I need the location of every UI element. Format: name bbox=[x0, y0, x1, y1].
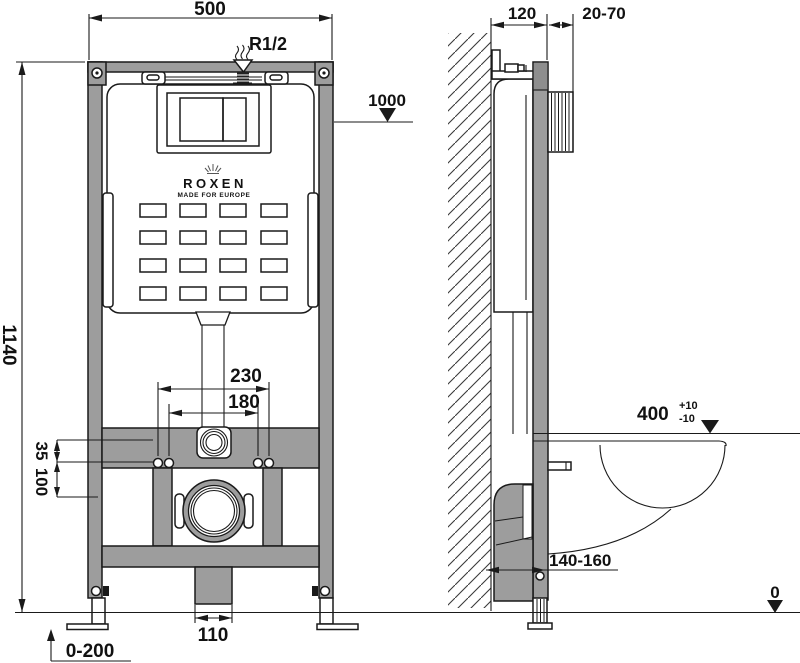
level-marker-400: 400 +10 -10 bbox=[637, 400, 719, 434]
corner-screw-dot bbox=[322, 71, 325, 74]
dim-label-230: 230 bbox=[230, 366, 262, 387]
finished-wall-zone bbox=[548, 92, 573, 152]
dim-label-180: 180 bbox=[228, 392, 260, 413]
clip-slot bbox=[270, 75, 282, 80]
dim-frame-width: 500 bbox=[89, 0, 332, 60]
drain-elbow bbox=[494, 484, 533, 601]
frame-top-bar bbox=[88, 62, 333, 72]
left-foot-tube bbox=[92, 598, 105, 624]
bottom-bar bbox=[102, 546, 319, 567]
dim-label-0: 0 bbox=[770, 583, 779, 602]
dim-label-1140: 1140 bbox=[0, 324, 19, 365]
dim-label-140-160: 140-160 bbox=[549, 551, 611, 570]
frame-hole-icon bbox=[536, 572, 544, 580]
side-foot bbox=[528, 598, 552, 629]
corner-screw-dot bbox=[95, 71, 98, 74]
brand-tagline: MADE FOR EUROPE bbox=[178, 192, 251, 199]
level-triangle-icon bbox=[379, 108, 396, 122]
level-marker-0: 0 bbox=[767, 583, 783, 613]
wall-hatch bbox=[448, 33, 491, 608]
cistern-side-profile bbox=[494, 79, 533, 312]
dim-label-0-200: 0-200 bbox=[66, 641, 115, 662]
level-marker-1000: 1000 bbox=[334, 91, 413, 122]
right-leg-bolt-icon bbox=[321, 587, 330, 596]
dim-label-tol-minus: -10 bbox=[679, 413, 695, 425]
frame-side-profile bbox=[533, 62, 548, 600]
dim-label-400: 400 bbox=[637, 404, 669, 425]
dim-outlet-width: 110 bbox=[195, 605, 232, 646]
left-leg-bolt-icon bbox=[92, 587, 101, 596]
frame-side-cap bbox=[534, 63, 548, 90]
level-triangle-icon bbox=[701, 420, 719, 434]
bowl-inner-curve bbox=[600, 445, 725, 508]
flush-pipe bbox=[196, 312, 230, 428]
brand-name: ROXEN bbox=[183, 176, 247, 191]
right-leg-clip bbox=[312, 586, 318, 596]
right-foot-tube bbox=[320, 598, 333, 624]
frame-left-rail bbox=[88, 62, 102, 598]
left-foot-plate bbox=[67, 624, 108, 630]
left-leg-clip bbox=[103, 586, 109, 596]
installation-drawing: ROXEN MADE FOR EUROPE bbox=[0, 0, 800, 663]
toilet-bowl bbox=[533, 434, 800, 555]
flush-plate bbox=[157, 85, 271, 153]
frame-right-rail bbox=[319, 62, 333, 598]
clip-slot bbox=[147, 75, 159, 80]
inlet-rod bbox=[548, 462, 571, 470]
dim-label-20-70: 20-70 bbox=[582, 4, 625, 23]
front-view: ROXEN MADE FOR EUROPE bbox=[67, 45, 358, 630]
dim-feet-range: 0-200 bbox=[47, 629, 131, 662]
lower-post-left bbox=[153, 468, 172, 546]
outlet-stub bbox=[195, 567, 232, 604]
label-inlet-thread: R1/2 bbox=[249, 34, 287, 54]
dim-label-500: 500 bbox=[194, 0, 226, 20]
side-view bbox=[448, 18, 800, 629]
dim-label-tol-plus: +10 bbox=[679, 400, 698, 412]
dim-label-1000: 1000 bbox=[368, 91, 406, 110]
dim-frame-height: 1140 bbox=[0, 62, 85, 612]
drain-fitting bbox=[197, 427, 231, 458]
installation-drawing-page: ROXEN MADE FOR EUROPE bbox=[0, 0, 800, 663]
tank-side-channel-right bbox=[308, 193, 318, 307]
lower-post-right bbox=[263, 468, 282, 546]
drain-outlet bbox=[175, 480, 253, 542]
tank-side-channel-left bbox=[103, 193, 113, 307]
right-foot-plate bbox=[317, 624, 358, 630]
bowl-outer-curve bbox=[548, 509, 671, 554]
dim-label-120: 120 bbox=[508, 4, 536, 23]
dim-label-110: 110 bbox=[198, 625, 229, 646]
dim-label-100: 100 bbox=[32, 468, 51, 496]
dim-label-35: 35 bbox=[32, 442, 51, 461]
